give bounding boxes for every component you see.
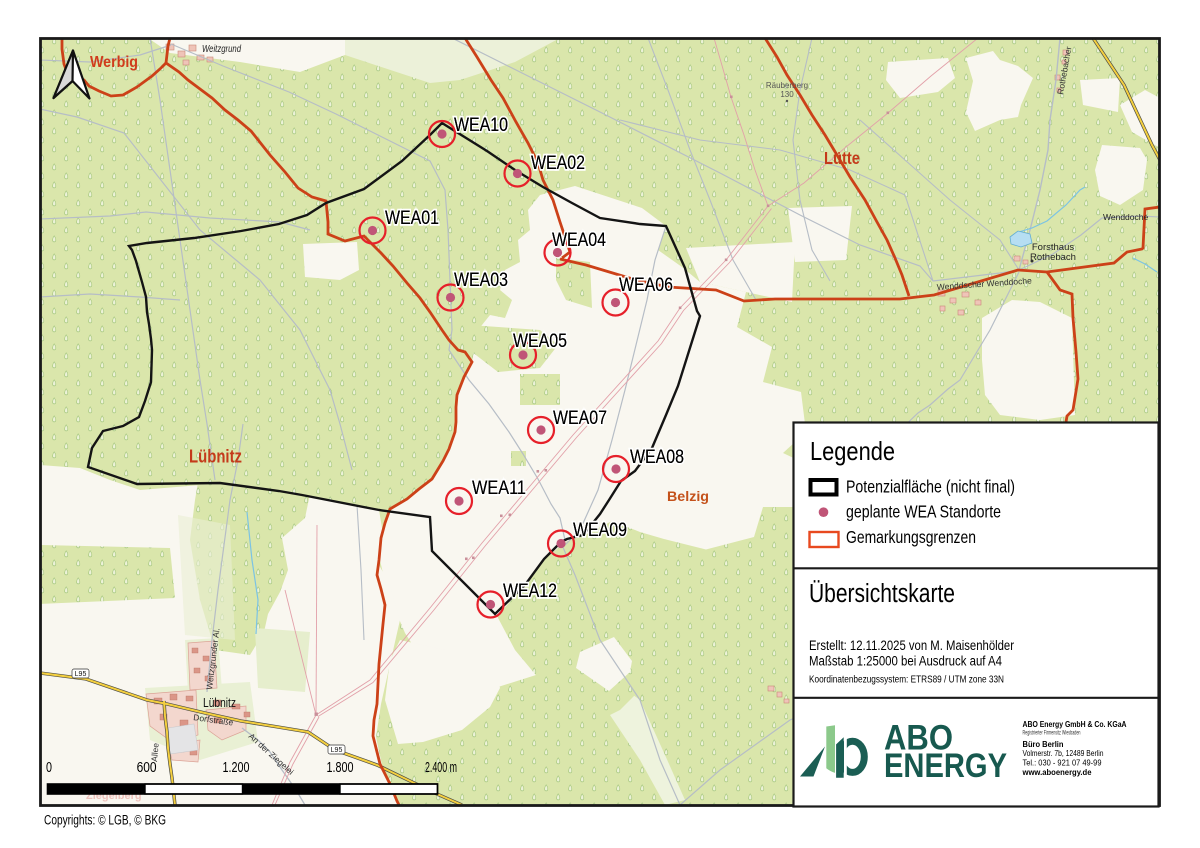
svg-text:600: 600 [137,760,157,776]
svg-text:WEA04: WEA04 [552,229,606,251]
svg-text:WEA05: WEA05 [513,330,567,352]
svg-text:Weitzgrund: Weitzgrund [202,44,241,55]
svg-text:ENERGY: ENERGY [884,747,1007,785]
svg-text:WEA08: WEA08 [630,446,684,468]
svg-text:Tel.: 030 - 921 07 49-99: Tel.: 030 - 921 07 49-99 [1023,759,1103,768]
svg-text:Potenzialfläche (nicht final): Potenzialfläche (nicht final) [846,477,1015,497]
svg-text:1.200: 1.200 [223,760,250,776]
svg-text:WEA06: WEA06 [619,274,673,296]
svg-text:Werbig: Werbig [90,54,138,71]
svg-text:Lübnitz: Lübnitz [189,447,242,467]
svg-text:Rothebach: Rothebach [1030,252,1076,263]
svg-text:WEA11: WEA11 [472,477,526,499]
svg-text:WEA02: WEA02 [531,152,585,174]
svg-text:Räuberberg: Räuberberg [766,81,808,90]
svg-text:ABO Energy GmbH & Co. KGaA: ABO Energy GmbH & Co. KGaA [1023,720,1127,729]
svg-text:Koordinatenbezugssystem: ETRS8: Koordinatenbezugssystem: ETRS89 / UTM zo… [809,674,1004,685]
svg-text:Wenddoche: Wenddoche [1103,212,1148,222]
svg-text:Lütte: Lütte [824,148,860,168]
svg-text:geplante WEA Standorte: geplante WEA Standorte [846,502,1001,522]
svg-text:www.aboenergy.de: www.aboenergy.de [1022,768,1092,777]
svg-text:Büro Berlin: Büro Berlin [1023,740,1064,749]
svg-text:WEA03: WEA03 [454,269,508,291]
svg-text:WEA10: WEA10 [454,114,508,136]
svg-text:Allee: Allee [149,742,161,762]
svg-text:Registrierter Firmensitz Wiesb: Registrierter Firmensitz Wiesbaden [1023,731,1081,737]
svg-text:Maßstab 1:25000 bei Ausdruck a: Maßstab 1:25000 bei Ausdruck auf A4 [809,653,1002,668]
svg-text:L95: L95 [331,747,343,754]
svg-text:Erstellt: 12.11.2025 von M. Ma: Erstellt: 12.11.2025 von M. Maisenhölder [809,638,1014,653]
svg-text:WEA01: WEA01 [385,207,439,229]
svg-text:Gemarkungsgrenzen: Gemarkungsgrenzen [846,527,976,547]
svg-text:WEA09: WEA09 [573,519,627,541]
svg-text:L95: L95 [75,671,87,678]
svg-text:Übersichtskarte: Übersichtskarte [809,580,955,608]
svg-text:Copyrights: © LGB, © BKG: Copyrights: © LGB, © BKG [44,813,166,828]
svg-text:WEA12: WEA12 [503,580,557,602]
svg-text:0: 0 [46,760,52,776]
svg-text:Belzig: Belzig [667,488,709,504]
svg-text:WEA07: WEA07 [553,407,607,429]
svg-text:Legende: Legende [810,436,895,466]
svg-text:130: 130 [780,90,794,99]
svg-text:1.800: 1.800 [327,760,354,776]
svg-text:Volmerstr. 7b, 12489 Berlin: Volmerstr. 7b, 12489 Berlin [1023,749,1104,758]
svg-text:Lübnitz: Lübnitz [203,695,236,710]
svg-text:2.400 m: 2.400 m [425,760,457,776]
